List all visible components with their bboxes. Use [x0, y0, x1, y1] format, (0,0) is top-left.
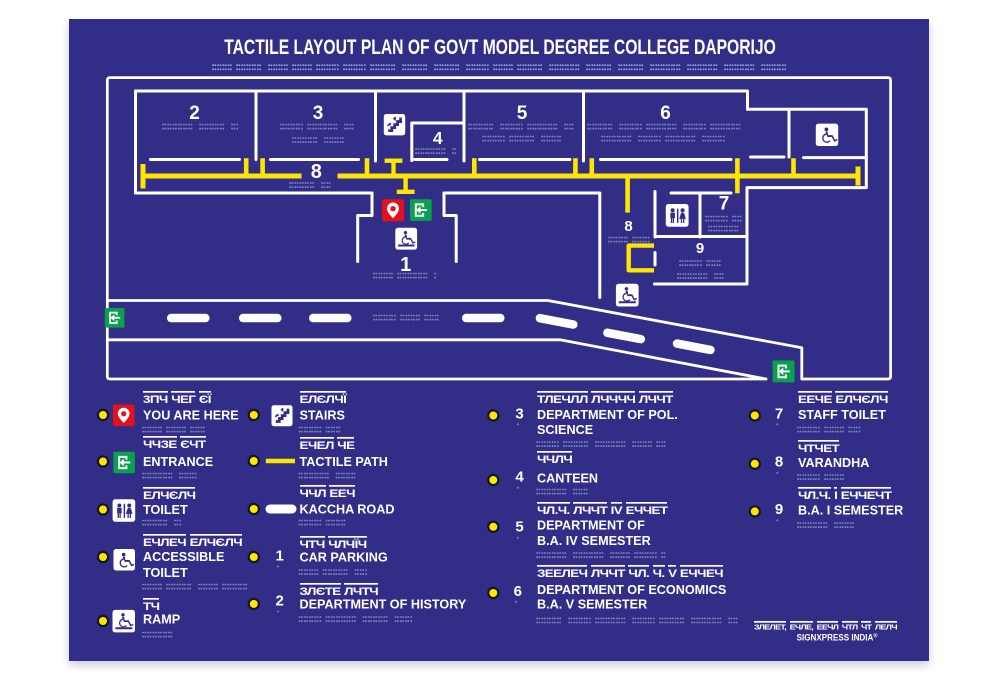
svg-text:2: 2 — [276, 593, 284, 610]
svg-text:B.A. IV SEMESTER: B.A. IV SEMESTER — [537, 533, 651, 548]
svg-text:B.A. V SEMESTER: B.A. V SEMESTER — [537, 596, 648, 611]
svg-text:KACCHA ROAD: KACCHA ROAD — [300, 501, 395, 516]
svg-text:ACCESSIBLE: ACCESSIBLE — [143, 549, 225, 564]
svg-text:VARANDHA: VARANDHA — [798, 455, 870, 470]
svg-text:4: 4 — [433, 128, 443, 148]
svg-text:DEPARTMENT OF ECONOMICS: DEPARTMENT OF ECONOMICS — [537, 582, 727, 597]
svg-text:7: 7 — [775, 405, 783, 422]
svg-text:9: 9 — [696, 240, 704, 257]
svg-text:6: 6 — [660, 103, 671, 124]
svg-text:5: 5 — [515, 519, 523, 536]
svg-text:CANTEEN: CANTEEN — [537, 470, 598, 485]
svg-text:8: 8 — [775, 454, 783, 471]
svg-text:B.A. I SEMESTER: B.A. I SEMESTER — [798, 502, 904, 517]
svg-text:7: 7 — [719, 194, 730, 215]
svg-text:STAIRS: STAIRS — [300, 407, 346, 422]
svg-text:DEPARTMENT OF: DEPARTMENT OF — [537, 517, 645, 532]
svg-text:STAFF TOILET: STAFF TOILET — [798, 407, 886, 422]
svg-text:SIGNXPRESS INDIA®: SIGNXPRESS INDIA® — [797, 632, 879, 642]
svg-text:TACTILE LAYOUT PLAN OF GOVT MO: TACTILE LAYOUT PLAN OF GOVT MODEL DEGREE… — [224, 35, 776, 59]
svg-text:5: 5 — [517, 103, 528, 124]
svg-text:SCIENCE: SCIENCE — [537, 422, 593, 437]
svg-text:ENTRANCE: ENTRANCE — [143, 454, 214, 469]
svg-text:1: 1 — [276, 548, 284, 565]
svg-text:TOILET: TOILET — [143, 565, 188, 580]
svg-text:3: 3 — [515, 405, 523, 422]
svg-text:1: 1 — [400, 254, 411, 276]
svg-text:4: 4 — [515, 469, 524, 486]
svg-text:TACTILE PATH: TACTILE PATH — [300, 454, 388, 469]
svg-text:9: 9 — [775, 501, 783, 518]
svg-text:6: 6 — [514, 583, 522, 600]
svg-text:YOU ARE HERE: YOU ARE HERE — [143, 407, 239, 422]
svg-text:8: 8 — [311, 161, 322, 183]
svg-text:3: 3 — [313, 103, 324, 124]
svg-text:8: 8 — [624, 218, 632, 235]
svg-text:DEPARTMENT OF POL.: DEPARTMENT OF POL. — [537, 407, 678, 422]
svg-text:TOILET: TOILET — [143, 502, 188, 517]
svg-text:2: 2 — [189, 103, 200, 124]
